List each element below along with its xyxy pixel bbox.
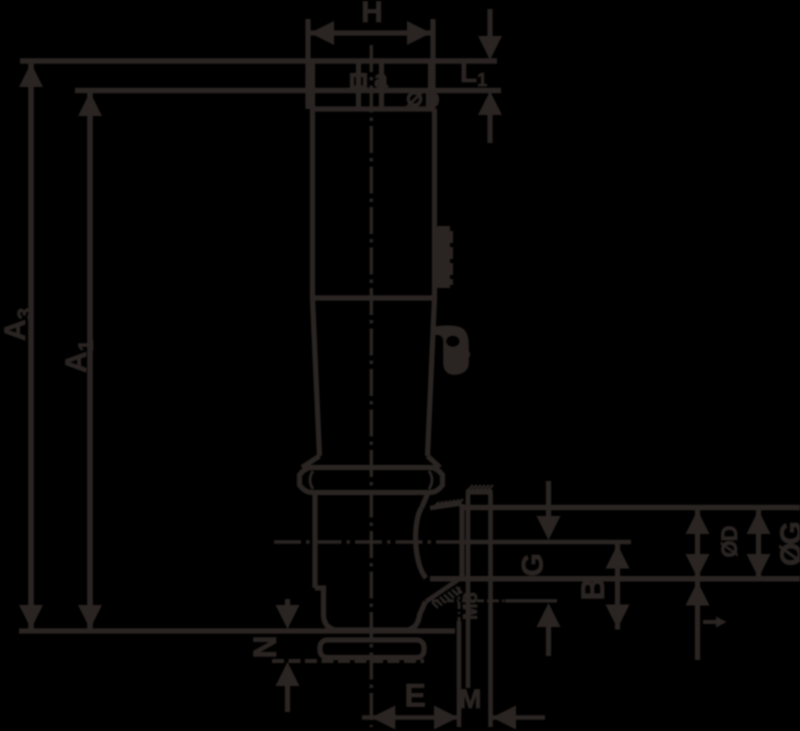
svg-text:ØG: ØG — [775, 523, 800, 566]
svg-text:M8: M8 — [460, 592, 482, 620]
svg-text:a: a — [374, 66, 389, 94]
svg-text:M: M — [459, 684, 482, 714]
svg-text:ØD: ØD — [717, 526, 742, 557]
svg-text:N: N — [247, 635, 283, 658]
svg-text:E: E — [405, 678, 426, 714]
svg-text:A1: A1 — [60, 339, 98, 373]
svg-text:A3: A3 — [0, 308, 37, 341]
svg-text:B: B — [575, 577, 611, 600]
svg-text:G: G — [517, 553, 550, 576]
svg-text:b: b — [425, 85, 440, 113]
svg-text:H: H — [361, 0, 383, 29]
